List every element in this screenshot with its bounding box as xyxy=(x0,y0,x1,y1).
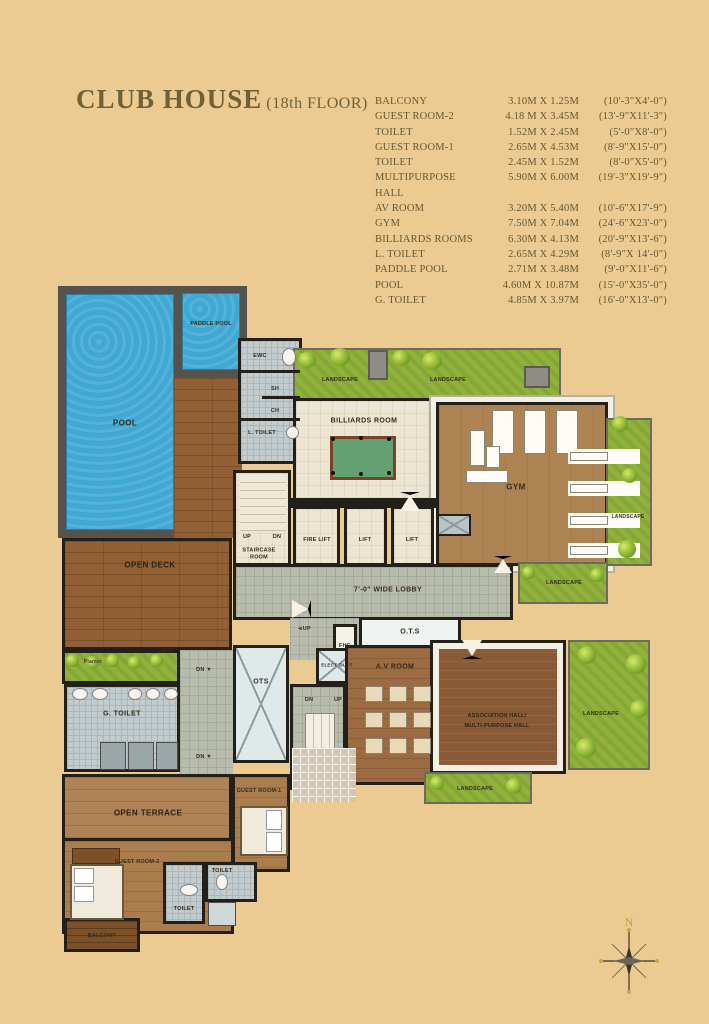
bush xyxy=(590,568,604,582)
paddle-pool xyxy=(182,293,240,370)
av-chair xyxy=(413,712,431,728)
headboard xyxy=(72,848,120,864)
bed xyxy=(70,864,124,920)
av-chair xyxy=(365,686,383,702)
wc-fixture xyxy=(216,874,228,890)
wall-segment xyxy=(240,418,300,421)
sh-label: SH xyxy=(271,386,279,392)
elect-duct-label: ELECT. DUCT xyxy=(320,662,354,667)
toilet-label: TOILET xyxy=(212,868,233,874)
bush xyxy=(392,350,410,366)
page-title: CLUB HOUSE (18th FLOOR) xyxy=(76,84,368,115)
wall-segment xyxy=(262,396,300,399)
staircase-room-label: STAIRCASE ROOM xyxy=(233,547,285,560)
dimension-legend: BALCONY3.10M X 1.25M(10'-3"X4'-0") GUEST… xyxy=(375,94,667,308)
landscape-label: LANDSCAPE xyxy=(430,377,466,383)
wc-fixture xyxy=(146,688,160,700)
av-chair xyxy=(389,686,407,702)
av-chair xyxy=(413,686,431,702)
door-swing xyxy=(292,600,311,618)
toilet-stall xyxy=(156,742,178,770)
legend-row: BILLIARDS ROOMS6.30M X 4.13M(20'-9"X13'-… xyxy=(375,232,667,247)
bush xyxy=(618,540,636,558)
fire-lift-label: FIRE LIFT xyxy=(303,537,330,543)
l-toilet-label: L. TOILET xyxy=(248,430,276,436)
av-room-label: A.V ROOM xyxy=(376,664,415,671)
lift-1 xyxy=(344,506,387,566)
association-hall xyxy=(430,640,566,774)
bush xyxy=(150,654,163,667)
gym-machine xyxy=(470,430,485,466)
landscape-label: LANDSCAPE xyxy=(546,580,582,586)
billiards-table xyxy=(330,436,396,480)
ch-label: CH xyxy=(271,408,279,414)
dumbbell-rack xyxy=(570,452,608,461)
wc-fixture xyxy=(164,688,178,700)
wall-segment xyxy=(240,370,300,373)
landscape-label: LANDSCAPE xyxy=(457,786,493,792)
dn-arrow-label: DN ▼ xyxy=(196,667,212,673)
sink-fixture xyxy=(180,884,198,896)
association-hall-label2: MULTI-PURPOSE HALL xyxy=(465,723,530,729)
table-pockets xyxy=(331,437,335,441)
legend-row: TOILET1.52M X 2.45M(5'-0"X8'-0") xyxy=(375,125,667,140)
bush xyxy=(576,738,596,758)
g-toilet-label: G. TOILET xyxy=(103,711,141,718)
legend-row: POOL4.60M X 10.87M(15'-0"X35'-0") xyxy=(375,278,667,293)
legend-row: TOILET2.45M X 1.52M(8'-0"X5'-0") xyxy=(375,155,667,170)
stair-treads xyxy=(240,475,286,531)
up-arrow-label: ◄UP xyxy=(297,626,311,632)
bush xyxy=(630,700,648,718)
billiards-room-label: BILLIARDS ROOM xyxy=(331,418,398,425)
sink-fixture xyxy=(92,688,108,700)
pool xyxy=(66,294,174,530)
pillow xyxy=(266,810,282,830)
av-chair xyxy=(413,738,431,754)
legend-row: AV ROOM3.20M X 5.40M(10'-6"X17'-9") xyxy=(375,201,667,216)
legend-row: G. TOILET4.85M X 3.97M(16'-0"X13'-0") xyxy=(375,293,667,308)
sink-fixture xyxy=(72,688,88,700)
ewc-label: EWC xyxy=(253,353,266,359)
title-floor: (18th FLOOR) xyxy=(266,95,368,112)
open-terrace-label: OPEN TERRACE xyxy=(114,809,182,818)
dn-arrow-label: DN ▼ xyxy=(196,754,212,760)
bush xyxy=(422,352,442,370)
lift-label: LIFT xyxy=(406,537,418,543)
planter-box xyxy=(524,366,550,388)
association-hall-label: ASSOCIATION HALL/ xyxy=(468,713,527,719)
bush xyxy=(128,656,141,669)
door-swing xyxy=(400,492,420,511)
av-chair xyxy=(365,738,383,754)
bush xyxy=(626,654,646,674)
ots-label: OTS xyxy=(253,679,269,686)
fhc-label: FHC xyxy=(339,643,351,649)
fire-lift xyxy=(293,506,340,566)
av-chair xyxy=(389,738,407,754)
open-deck-label: OPEN DECK xyxy=(124,561,175,570)
pool-label: POOL xyxy=(113,419,137,428)
planter-strip xyxy=(62,650,180,684)
toilet-stall xyxy=(100,742,126,770)
bush xyxy=(66,654,79,667)
pillow xyxy=(74,868,94,884)
title-main: CLUB HOUSE xyxy=(76,84,262,114)
gym-label: GYM xyxy=(506,483,525,492)
dn-label: DN xyxy=(273,534,281,540)
deck-strip xyxy=(174,378,242,538)
lift-label: LIFT xyxy=(359,537,371,543)
bush xyxy=(506,778,522,794)
duct-box xyxy=(437,514,471,536)
bed xyxy=(240,806,288,856)
lift-2 xyxy=(391,506,434,566)
ewc-fixture xyxy=(282,348,296,366)
balcony-label: BALCONY xyxy=(88,933,117,939)
landscape-label: LANDSCAPE xyxy=(322,377,358,383)
bush xyxy=(106,654,119,667)
ots-small-label: O.T.S xyxy=(400,629,420,636)
dumbbell-rack xyxy=(570,484,608,493)
compass-rose: N xyxy=(594,912,664,996)
bush xyxy=(612,416,628,432)
up-label: UP xyxy=(334,697,342,703)
toilet-label: TOILET xyxy=(174,906,195,912)
bush xyxy=(578,646,596,664)
legend-row: GYM7.50M X 7.04M(24'-6"X23'-0") xyxy=(375,216,667,231)
paddle-pool-label: PADDLE POOL xyxy=(190,321,232,327)
lobby-label: 7'-0" WIDE LOBBY xyxy=(354,587,422,594)
terrace-tile xyxy=(292,748,356,802)
bush xyxy=(522,566,535,579)
legend-row: GUEST ROOM-12.65M X 4.53M(8'-9"X15'-0") xyxy=(375,140,667,155)
legend-row: GUEST ROOM-24.18 M X 3.45M(13'-9"X11'-3"… xyxy=(375,109,667,124)
gym-machine xyxy=(486,446,500,468)
legend-row: PADDLE POOL2.71M X 3.48M(9'-0"X11'-6") xyxy=(375,262,667,277)
landscape-label: LANDSCAPE xyxy=(583,711,619,717)
bush xyxy=(430,776,444,790)
treadmill xyxy=(556,410,578,454)
planter-box xyxy=(368,350,388,380)
bush xyxy=(330,348,350,366)
legend-row: BALCONY3.10M X 1.25M(10'-3"X4'-0") xyxy=(375,94,667,109)
up-arrow-label: ◄UP xyxy=(160,648,174,654)
compass-north-label: N xyxy=(625,915,634,929)
wc-fixture xyxy=(128,688,142,700)
legend-row: MULTIPURPOSE HALL5.90M X 6.00M(19'-3"X19… xyxy=(375,170,667,201)
door-swing xyxy=(462,640,482,659)
up-label: UP xyxy=(243,534,251,540)
dumbbell-rack xyxy=(570,516,608,525)
landscape-label: LANDSCAPE xyxy=(612,514,645,520)
floorplan-poster: CLUB HOUSE (18th FLOOR) BALCONY3.10M X 1… xyxy=(0,0,709,1024)
ots-shaft xyxy=(233,645,289,763)
door-swing xyxy=(494,556,512,573)
pillow xyxy=(266,832,282,852)
guest-room-1-label: GUEST ROOM-1 xyxy=(237,788,282,794)
dumbbell-rack xyxy=(570,546,608,555)
shower-stall xyxy=(208,902,236,926)
av-chair xyxy=(389,712,407,728)
sink-fixture xyxy=(286,426,299,439)
legend-row: L. TOILET2.65M X 4.29M(8'-9"X 14'-0") xyxy=(375,247,667,262)
open-deck xyxy=(62,538,232,650)
bush xyxy=(298,352,316,368)
guest-room-2-label: GUEST ROOM-2 xyxy=(115,859,160,865)
bush xyxy=(622,468,637,483)
av-chair xyxy=(365,712,383,728)
pillow xyxy=(74,886,94,902)
gym-bench xyxy=(466,470,508,483)
planter-label: Planter xyxy=(84,659,102,665)
dn-label: DN xyxy=(305,697,313,703)
toilet-stall xyxy=(128,742,154,770)
treadmill xyxy=(524,410,546,454)
